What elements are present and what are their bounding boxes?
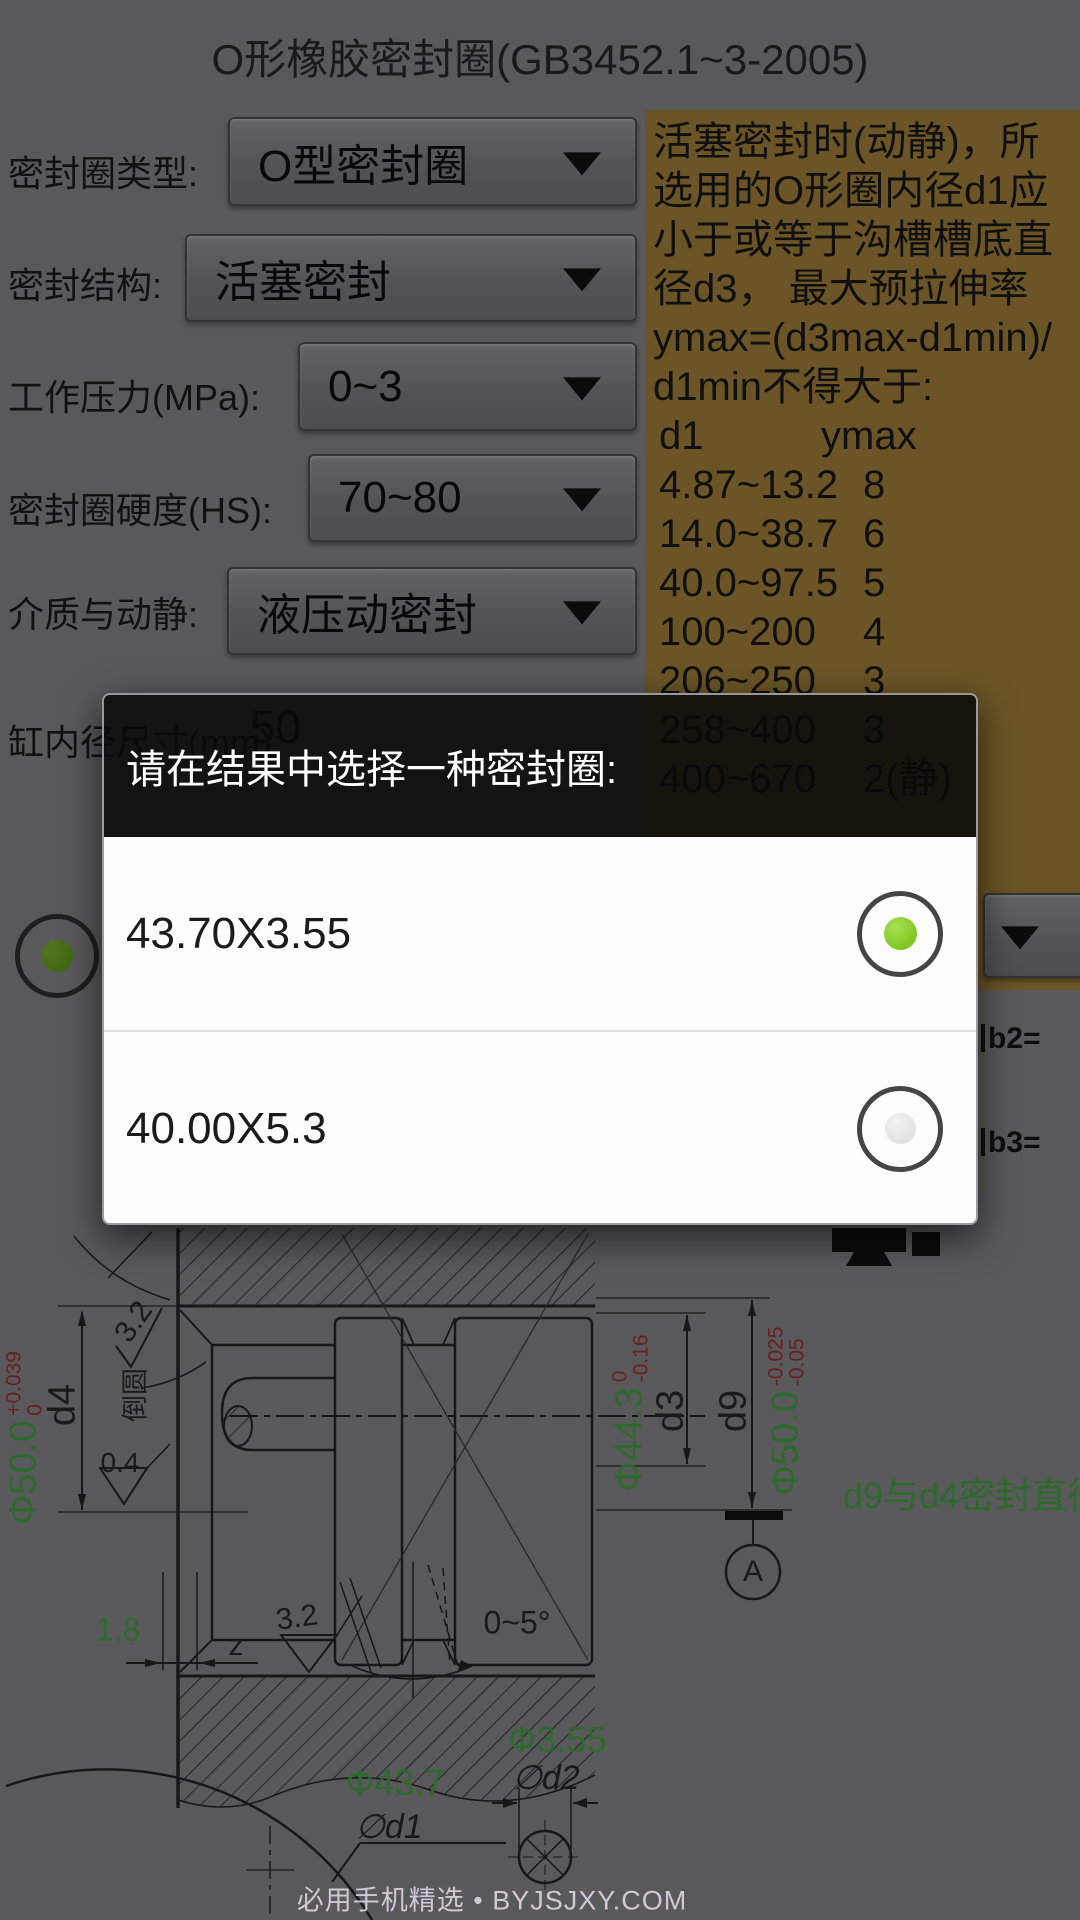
dialog-title: 请在结果中选择一种密封圈: — [104, 737, 617, 795]
option-label: 40.00X5.3 — [104, 1104, 327, 1154]
radio-selected-icon[interactable] — [857, 891, 943, 977]
option-label: 43.70X3.55 — [104, 909, 351, 959]
dialog-header: 请在结果中选择一种密封圈: — [104, 695, 976, 837]
dialog-body: 43.70X3.55 40.00X5.3 — [104, 837, 976, 1225]
radio-unselected-icon[interactable] — [857, 1086, 943, 1172]
app-screen: O形橡胶密封圈(GB3452.1~3-2005) 密封圈类型: O型密封圈 密封… — [0, 0, 1080, 1920]
selection-dialog: 请在结果中选择一种密封圈: 43.70X3.55 40.00X5.3 — [102, 693, 978, 1225]
radio-dot — [885, 1113, 916, 1144]
watermark: 必用手机精选 • BYJSJXY.COM — [297, 1879, 688, 1918]
radio-dot — [884, 917, 917, 950]
option-40.00X5.3[interactable]: 40.00X5.3 — [104, 1030, 976, 1225]
option-43.70X3.55[interactable]: 43.70X3.55 — [104, 837, 976, 1030]
